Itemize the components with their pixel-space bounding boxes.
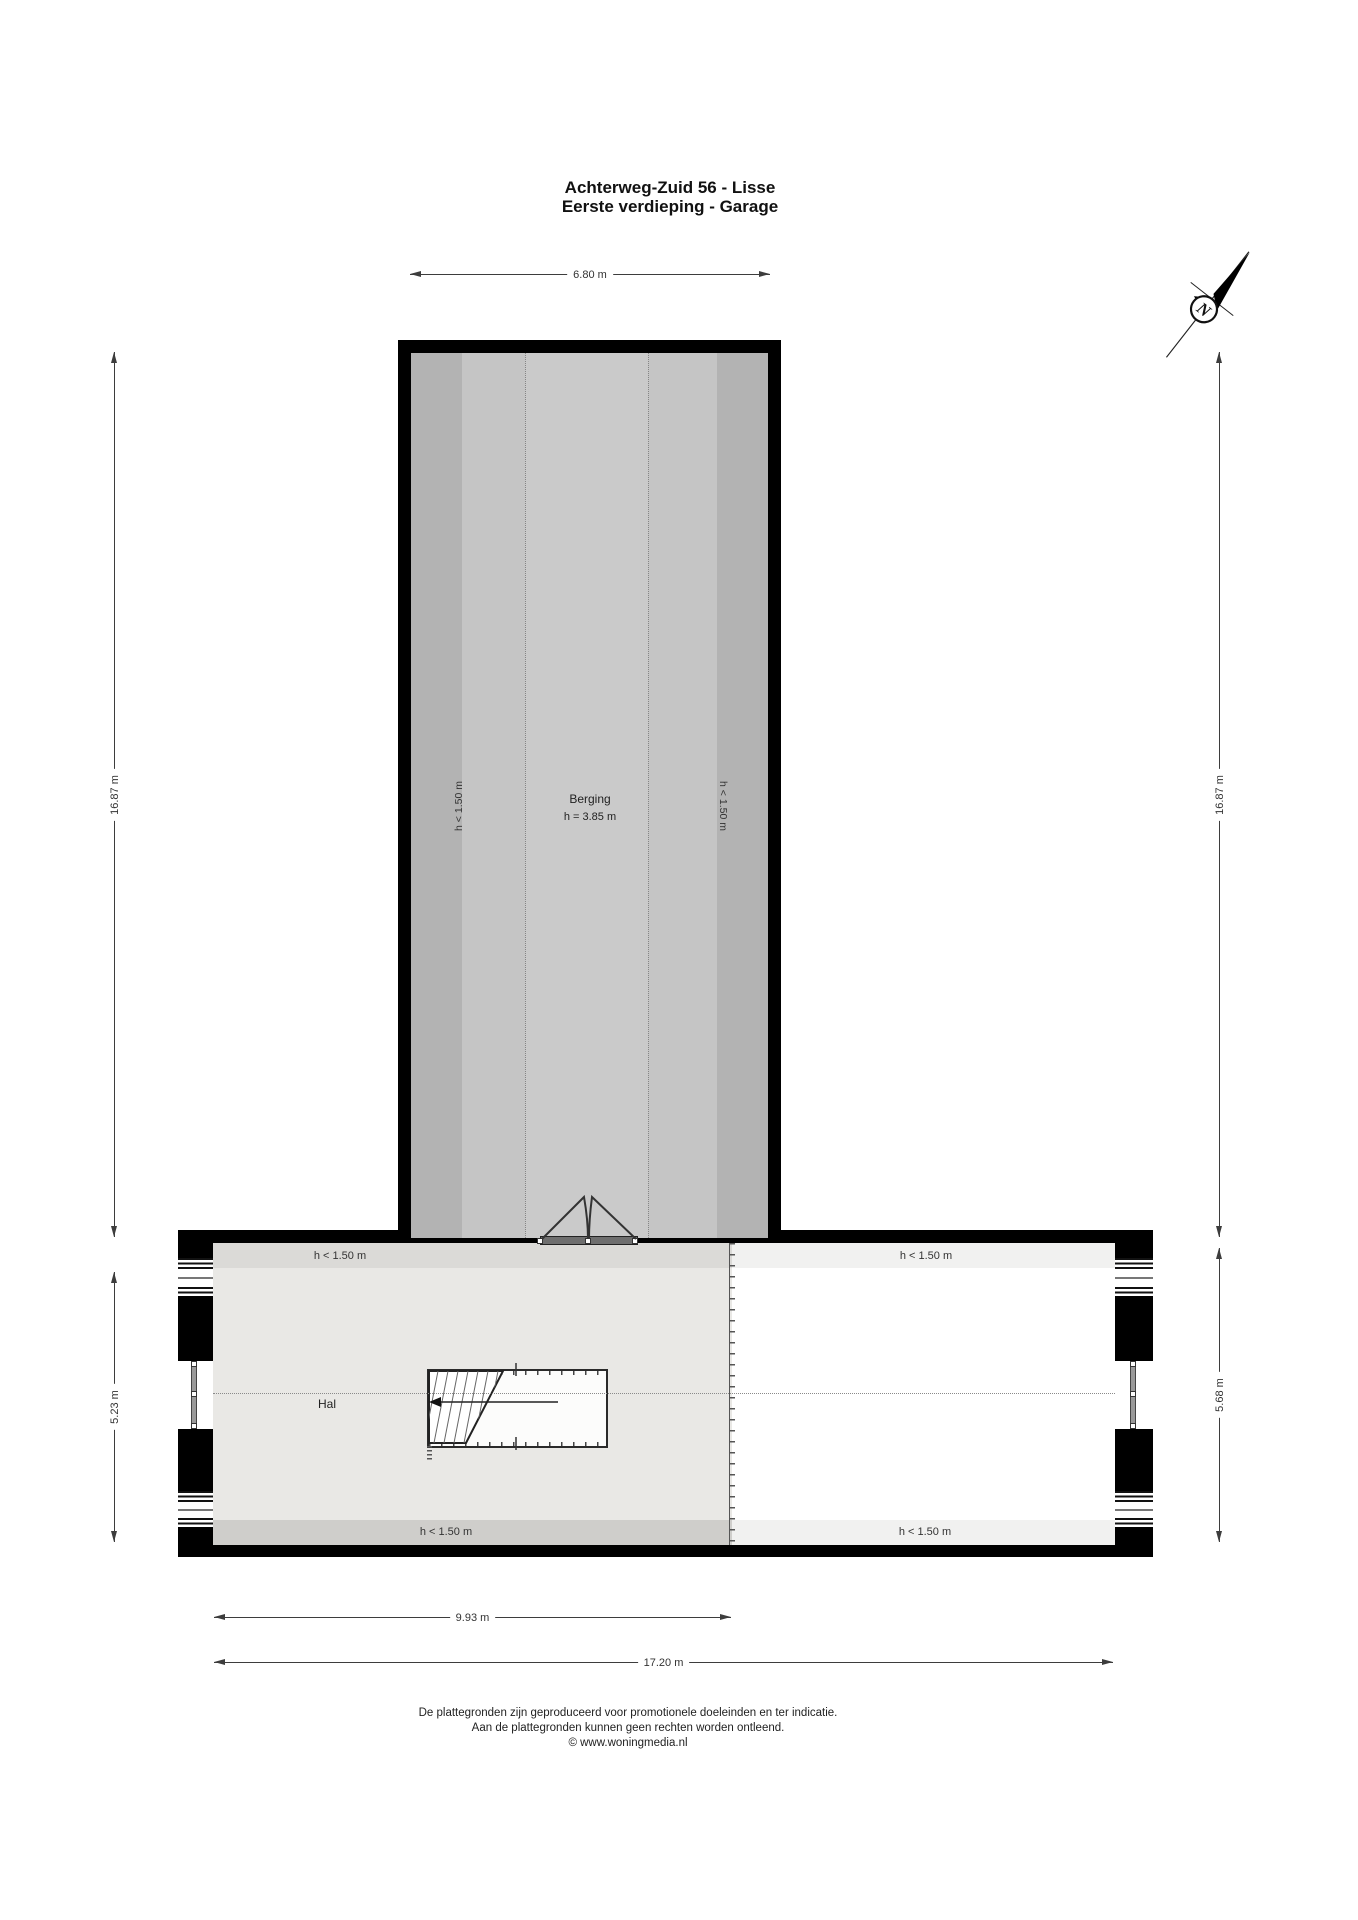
clearance-label-berging-right: h < 1.50 m (717, 781, 729, 831)
room-label-hal: Hal (318, 1397, 336, 1411)
low-clearance-boundary-right (648, 353, 649, 1238)
window-left-lower-sill (178, 1509, 213, 1511)
window-left-post-bottom (191, 1423, 197, 1429)
hal-low-strip-top (213, 1243, 732, 1268)
window-left-upper-glazing2 (178, 1287, 213, 1296)
page-title-floor: Eerste verdieping - Garage (562, 197, 778, 216)
window-left-upper-sill (178, 1277, 213, 1279)
window-left-lower-glazing (178, 1491, 213, 1503)
window-right-lower-glazing (1115, 1491, 1153, 1503)
dimension-top-width: 6.80 m (410, 274, 770, 275)
dimension-right-lower-height: 5.68 m (1219, 1248, 1220, 1542)
arrow-right-icon (759, 271, 770, 277)
arrow-right-icon (1102, 1659, 1113, 1665)
window-right-lower-sill (1115, 1509, 1153, 1511)
dimension-bottom-total-width: 17.20 m (214, 1662, 1113, 1663)
window-right-upper-sill (1115, 1277, 1153, 1279)
dimension-bottom-total-width-label: 17.20 m (638, 1657, 690, 1669)
dimension-bottom-inner-width-label: 9.93 m (450, 1612, 496, 1624)
clearance-label-berging-left: h < 1.50 m (453, 781, 465, 831)
svg-text:N: N (1192, 298, 1215, 322)
arrow-left-icon (410, 271, 421, 277)
arrow-down-icon (1216, 1226, 1222, 1237)
clearance-label-garage-bottom: h < 1.50 m (899, 1526, 951, 1538)
arrow-up-icon (1216, 1248, 1222, 1259)
window-right-lower-glazing2 (1115, 1518, 1153, 1527)
window-right-post-bottom (1130, 1423, 1136, 1429)
window-left-post-mid (191, 1391, 197, 1397)
window-left-upper-glazing (178, 1258, 213, 1270)
door-post-center (585, 1238, 591, 1244)
window-right-upper-glazing2 (1115, 1287, 1153, 1296)
stair-wall-connector (427, 1446, 432, 1460)
low-clearance-boundary-left (525, 353, 526, 1238)
room-label-berging: Berging (569, 792, 610, 806)
arrow-up-icon (1216, 352, 1222, 363)
floorplan-page: Achterweg-Zuid 56 - Lisse Eerste verdiep… (0, 0, 1358, 1920)
low-clearance-midline (213, 1393, 1115, 1394)
door-post-left (537, 1238, 543, 1244)
dimension-left-height-label: 16.87 m (107, 769, 123, 821)
window-right-upper-glazing (1115, 1258, 1153, 1270)
footer-disclaimer: De plattegronden zijn geproduceerd voor … (419, 1706, 838, 1751)
garage-attic-floor (732, 1243, 1115, 1545)
dimension-right-height-label: 16.87 m (1212, 769, 1228, 821)
dimension-top-width-label: 6.80 m (567, 269, 613, 281)
compass-north-icon: N (1145, 235, 1270, 374)
arrow-left-icon (214, 1659, 225, 1665)
dimension-left-lower-height: 5.23 m (114, 1272, 115, 1542)
berging-mid-band-left (462, 353, 525, 1238)
arrow-down-icon (111, 1226, 117, 1237)
arrow-left-icon (214, 1614, 225, 1620)
dimension-right-lower-height-label: 5.68 m (1212, 1372, 1228, 1418)
hal-low-strip-bottom (213, 1520, 732, 1545)
page-title-address: Achterweg-Zuid 56 - Lisse (565, 178, 776, 197)
footer-line2: Aan de plattegronden kunnen geen rechten… (419, 1721, 838, 1736)
arrow-down-icon (1216, 1531, 1222, 1542)
window-right-post-mid (1130, 1391, 1136, 1397)
arrow-right-icon (720, 1614, 731, 1620)
dimension-left-height: 16.87 m (114, 352, 115, 1237)
dividing-wall (729, 1243, 735, 1545)
window-left-post-top (191, 1361, 197, 1367)
door-post-right (632, 1238, 638, 1244)
clearance-label-hal-top: h < 1.50 m (314, 1250, 366, 1262)
berging-mid-band-right (648, 353, 717, 1238)
window-right-post-top (1130, 1361, 1136, 1367)
room-height-berging: h = 3.85 m (564, 811, 616, 823)
dimension-right-height: 16.87 m (1219, 352, 1220, 1237)
dimension-left-lower-height-label: 5.23 m (107, 1384, 123, 1430)
window-left-lower-glazing2 (178, 1518, 213, 1527)
clearance-label-hal-bottom: h < 1.50 m (420, 1526, 472, 1538)
footer-line1: De plattegronden zijn geproduceerd voor … (419, 1706, 838, 1721)
arrow-down-icon (111, 1531, 117, 1542)
footer-copyright: © www.woningmedia.nl (419, 1736, 838, 1751)
arrow-up-icon (111, 352, 117, 363)
arrow-up-icon (111, 1272, 117, 1283)
clearance-label-garage-top: h < 1.50 m (900, 1250, 952, 1262)
stairwell-opening (427, 1369, 608, 1448)
dimension-bottom-inner-width: 9.93 m (214, 1617, 731, 1618)
